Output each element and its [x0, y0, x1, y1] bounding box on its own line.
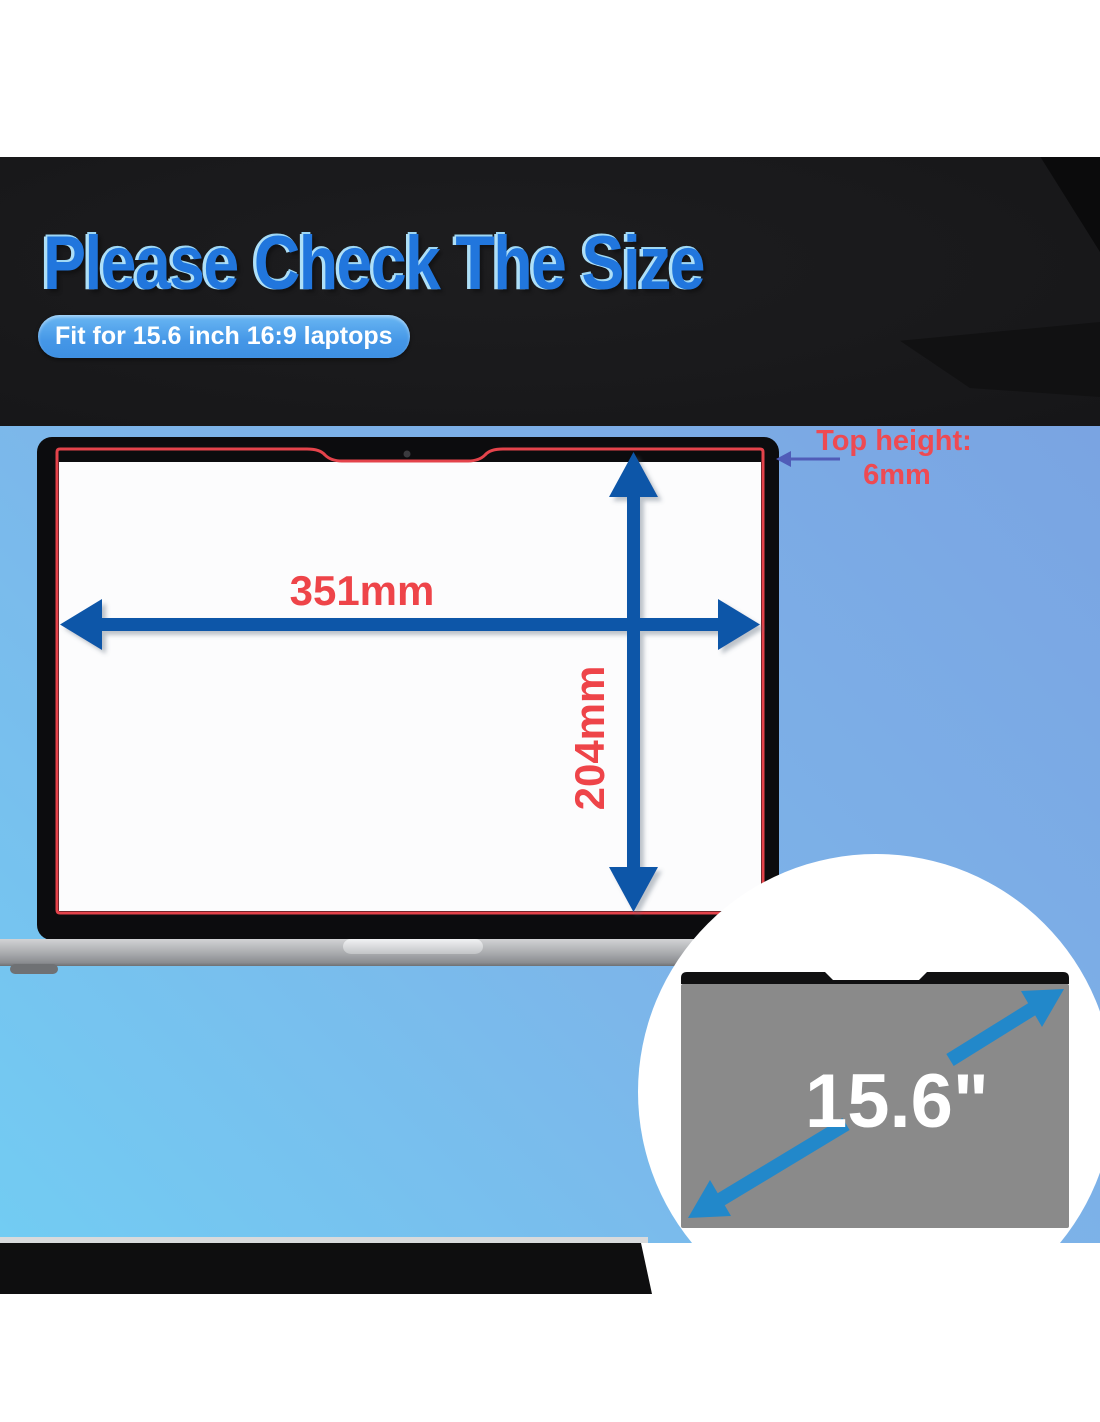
diagonal-size-label: 15.6" — [805, 1059, 989, 1144]
filter-camera-notch — [825, 972, 927, 980]
laptop-screen — [59, 462, 761, 911]
product-size-guide-image: Please Check The Size Fit for 15.6 inch … — [0, 0, 1100, 1422]
size-diagram: 351mm 204mm Top height: 6mm 1 — [0, 0, 1100, 1422]
top-height-label-line2: 6mm — [863, 459, 931, 491]
privacy-filter-inset: 15.6" — [681, 972, 1069, 1228]
table-edge — [0, 1237, 652, 1294]
width-label: 351mm — [290, 567, 435, 614]
top-height-label-line1: Top height: — [816, 425, 972, 457]
laptop-hinge-notch — [343, 939, 483, 954]
webcam-icon — [404, 451, 411, 458]
laptop-illustration — [0, 437, 779, 974]
height-label: 204mm — [566, 666, 613, 811]
laptop-foot — [10, 964, 58, 974]
